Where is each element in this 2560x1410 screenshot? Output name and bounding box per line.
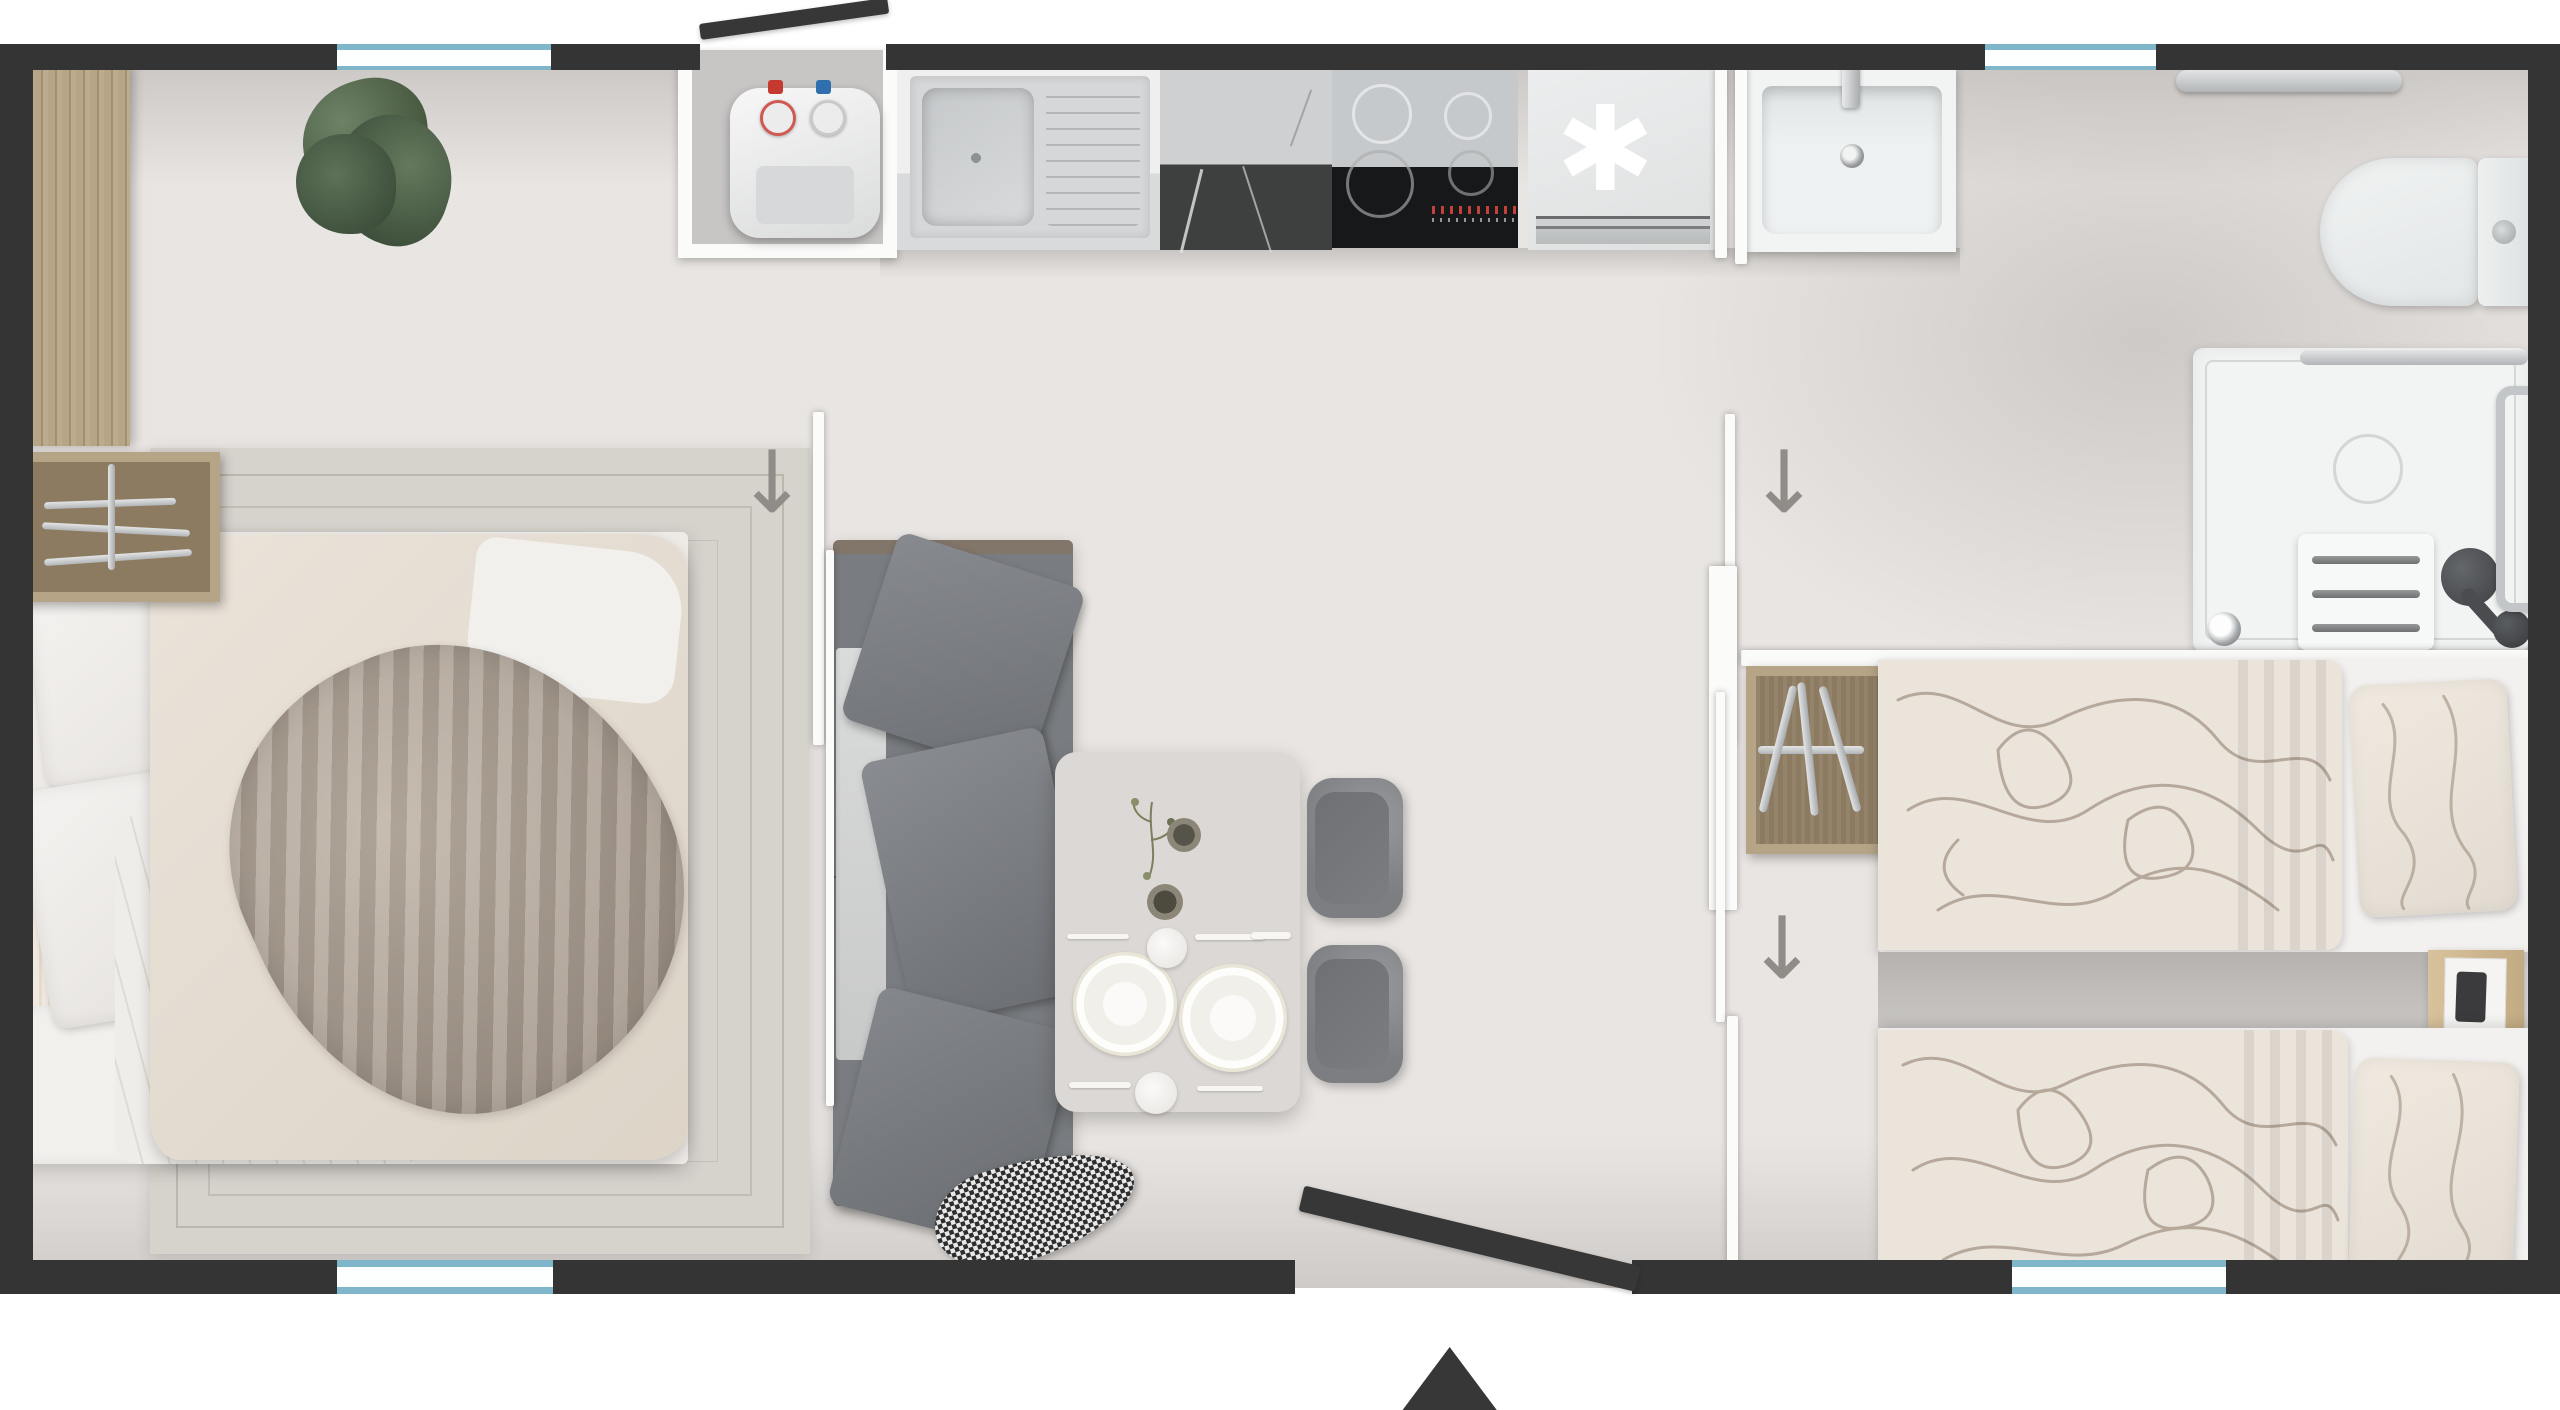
coaster [1147, 884, 1183, 920]
spoon [1251, 932, 1291, 939]
showerhead-mark [2333, 434, 2403, 504]
wall-top [0, 44, 337, 70]
plate [1073, 952, 1177, 1056]
wall-bottom [553, 1260, 1295, 1294]
bed-duvet [1878, 1030, 2348, 1282]
sink-drainer [1046, 88, 1140, 226]
wall-top [2156, 44, 2560, 70]
burner [1352, 84, 1412, 144]
toilet [2320, 158, 2534, 306]
burner [1444, 92, 1492, 140]
wall-top [551, 44, 700, 70]
fridge-vent [1536, 216, 1710, 244]
double-bed [20, 532, 688, 1164]
shelf-rail [42, 522, 190, 537]
heater-cap-hot [768, 80, 783, 94]
hand-shower-head [2493, 610, 2531, 648]
heater-knob [760, 100, 796, 136]
shelf-rail-vertical [108, 464, 115, 570]
shower-seat [2298, 534, 2434, 650]
chair-seat [1315, 959, 1389, 1069]
window-top-left [337, 44, 551, 70]
coaster [1167, 818, 1201, 852]
partition-right-wall-top [1715, 68, 1727, 258]
marble-vein [1290, 89, 1312, 146]
marble-vein [1242, 166, 1272, 252]
fork [1067, 934, 1129, 939]
plant-foliage [296, 134, 396, 234]
duvet-folds [2244, 1030, 2348, 1282]
potted-plant [296, 72, 456, 252]
burner [1346, 150, 1414, 218]
floor-between-beds [1878, 952, 2430, 1028]
door-arrow-right-lower: ↓ [1746, 906, 1818, 992]
entrance-arrow: ▲ [1393, 1342, 1506, 1410]
plate [1179, 964, 1287, 1072]
shower-rail-bar [2300, 350, 2528, 365]
pillow-pattern [2348, 1057, 2520, 1287]
fork [1197, 1086, 1263, 1091]
seat-slat [2312, 590, 2420, 598]
towel-rail [2176, 70, 2402, 92]
seat-slat [2312, 556, 2420, 564]
cooktop-controls [1432, 218, 1516, 222]
bath-drain [1840, 144, 1864, 168]
heater-cap-cold [816, 80, 831, 94]
seat-slat [2312, 624, 2420, 632]
water-heater-closet [678, 50, 897, 258]
wall-right [2528, 44, 2560, 1294]
pillow-pattern [2348, 678, 2518, 918]
toilet-bowl [2320, 158, 2478, 306]
bed-pillow [2348, 678, 2518, 918]
freezer-symbol: ✱ [1556, 90, 1655, 208]
heater-knob [810, 100, 846, 136]
bed-pillow [2348, 1057, 2520, 1287]
door-arrow-right-upper: ↓ [1748, 440, 1820, 526]
burner [1448, 150, 1494, 196]
marble-counter [1160, 68, 1332, 250]
shower-drain [2207, 612, 2241, 646]
partition-right-door [1716, 692, 1725, 1022]
window-bottom-left [337, 1260, 553, 1294]
marble-vein [1180, 169, 1204, 253]
chair-seat [1315, 792, 1389, 904]
partition-left-door [826, 550, 834, 1106]
cooktop-controls [1432, 206, 1516, 214]
partition-right-wall-top [1735, 68, 1747, 264]
fridge-freezer: ✱ [1528, 68, 1718, 250]
floor-plan: ✱ [0, 0, 2560, 1410]
wall-left [0, 44, 33, 1294]
spoon [1069, 1082, 1131, 1088]
cup [1135, 1072, 1177, 1114]
tall-wardrobe [20, 66, 130, 446]
rail-shelf [22, 452, 220, 602]
dining-table [1055, 752, 1300, 1112]
bed-duvet [1878, 660, 2342, 950]
cup [1147, 928, 1187, 968]
shower [2193, 348, 2528, 652]
partition-left-door [813, 412, 824, 745]
window-top-right [1985, 44, 2156, 70]
shelf-rail [44, 549, 192, 566]
door-arrow-left: ↓ [736, 440, 808, 526]
wall-bottom [0, 1260, 337, 1294]
vent-flap [699, 0, 889, 40]
corner-sofa [833, 540, 1073, 1206]
duvet-folds [2238, 660, 2342, 950]
heater-panel [756, 166, 854, 224]
kitchen-sink-unit [897, 68, 1160, 250]
open-wardrobe [1746, 666, 1896, 854]
partition-right-wall-bottom [1727, 1016, 1738, 1266]
window-bottom-right [2012, 1260, 2226, 1294]
sink-drain [966, 148, 986, 168]
wall-top [886, 44, 1985, 70]
chair [1307, 778, 1403, 918]
toilet-flush-button [2492, 220, 2516, 244]
nightstand-phone [2455, 971, 2487, 1022]
wall-bottom [2226, 1260, 2560, 1294]
wall-bottom [1632, 1260, 2012, 1294]
sink-steel [910, 76, 1150, 238]
bathroom-sink [1747, 68, 1956, 252]
induction-cooktop [1332, 68, 1518, 248]
water-heater [730, 88, 880, 238]
twin-bed-upper [1878, 658, 2532, 952]
chair [1307, 945, 1403, 1083]
twin-bed-lower [1878, 1028, 2532, 1284]
bath-faucet [1842, 64, 1860, 108]
